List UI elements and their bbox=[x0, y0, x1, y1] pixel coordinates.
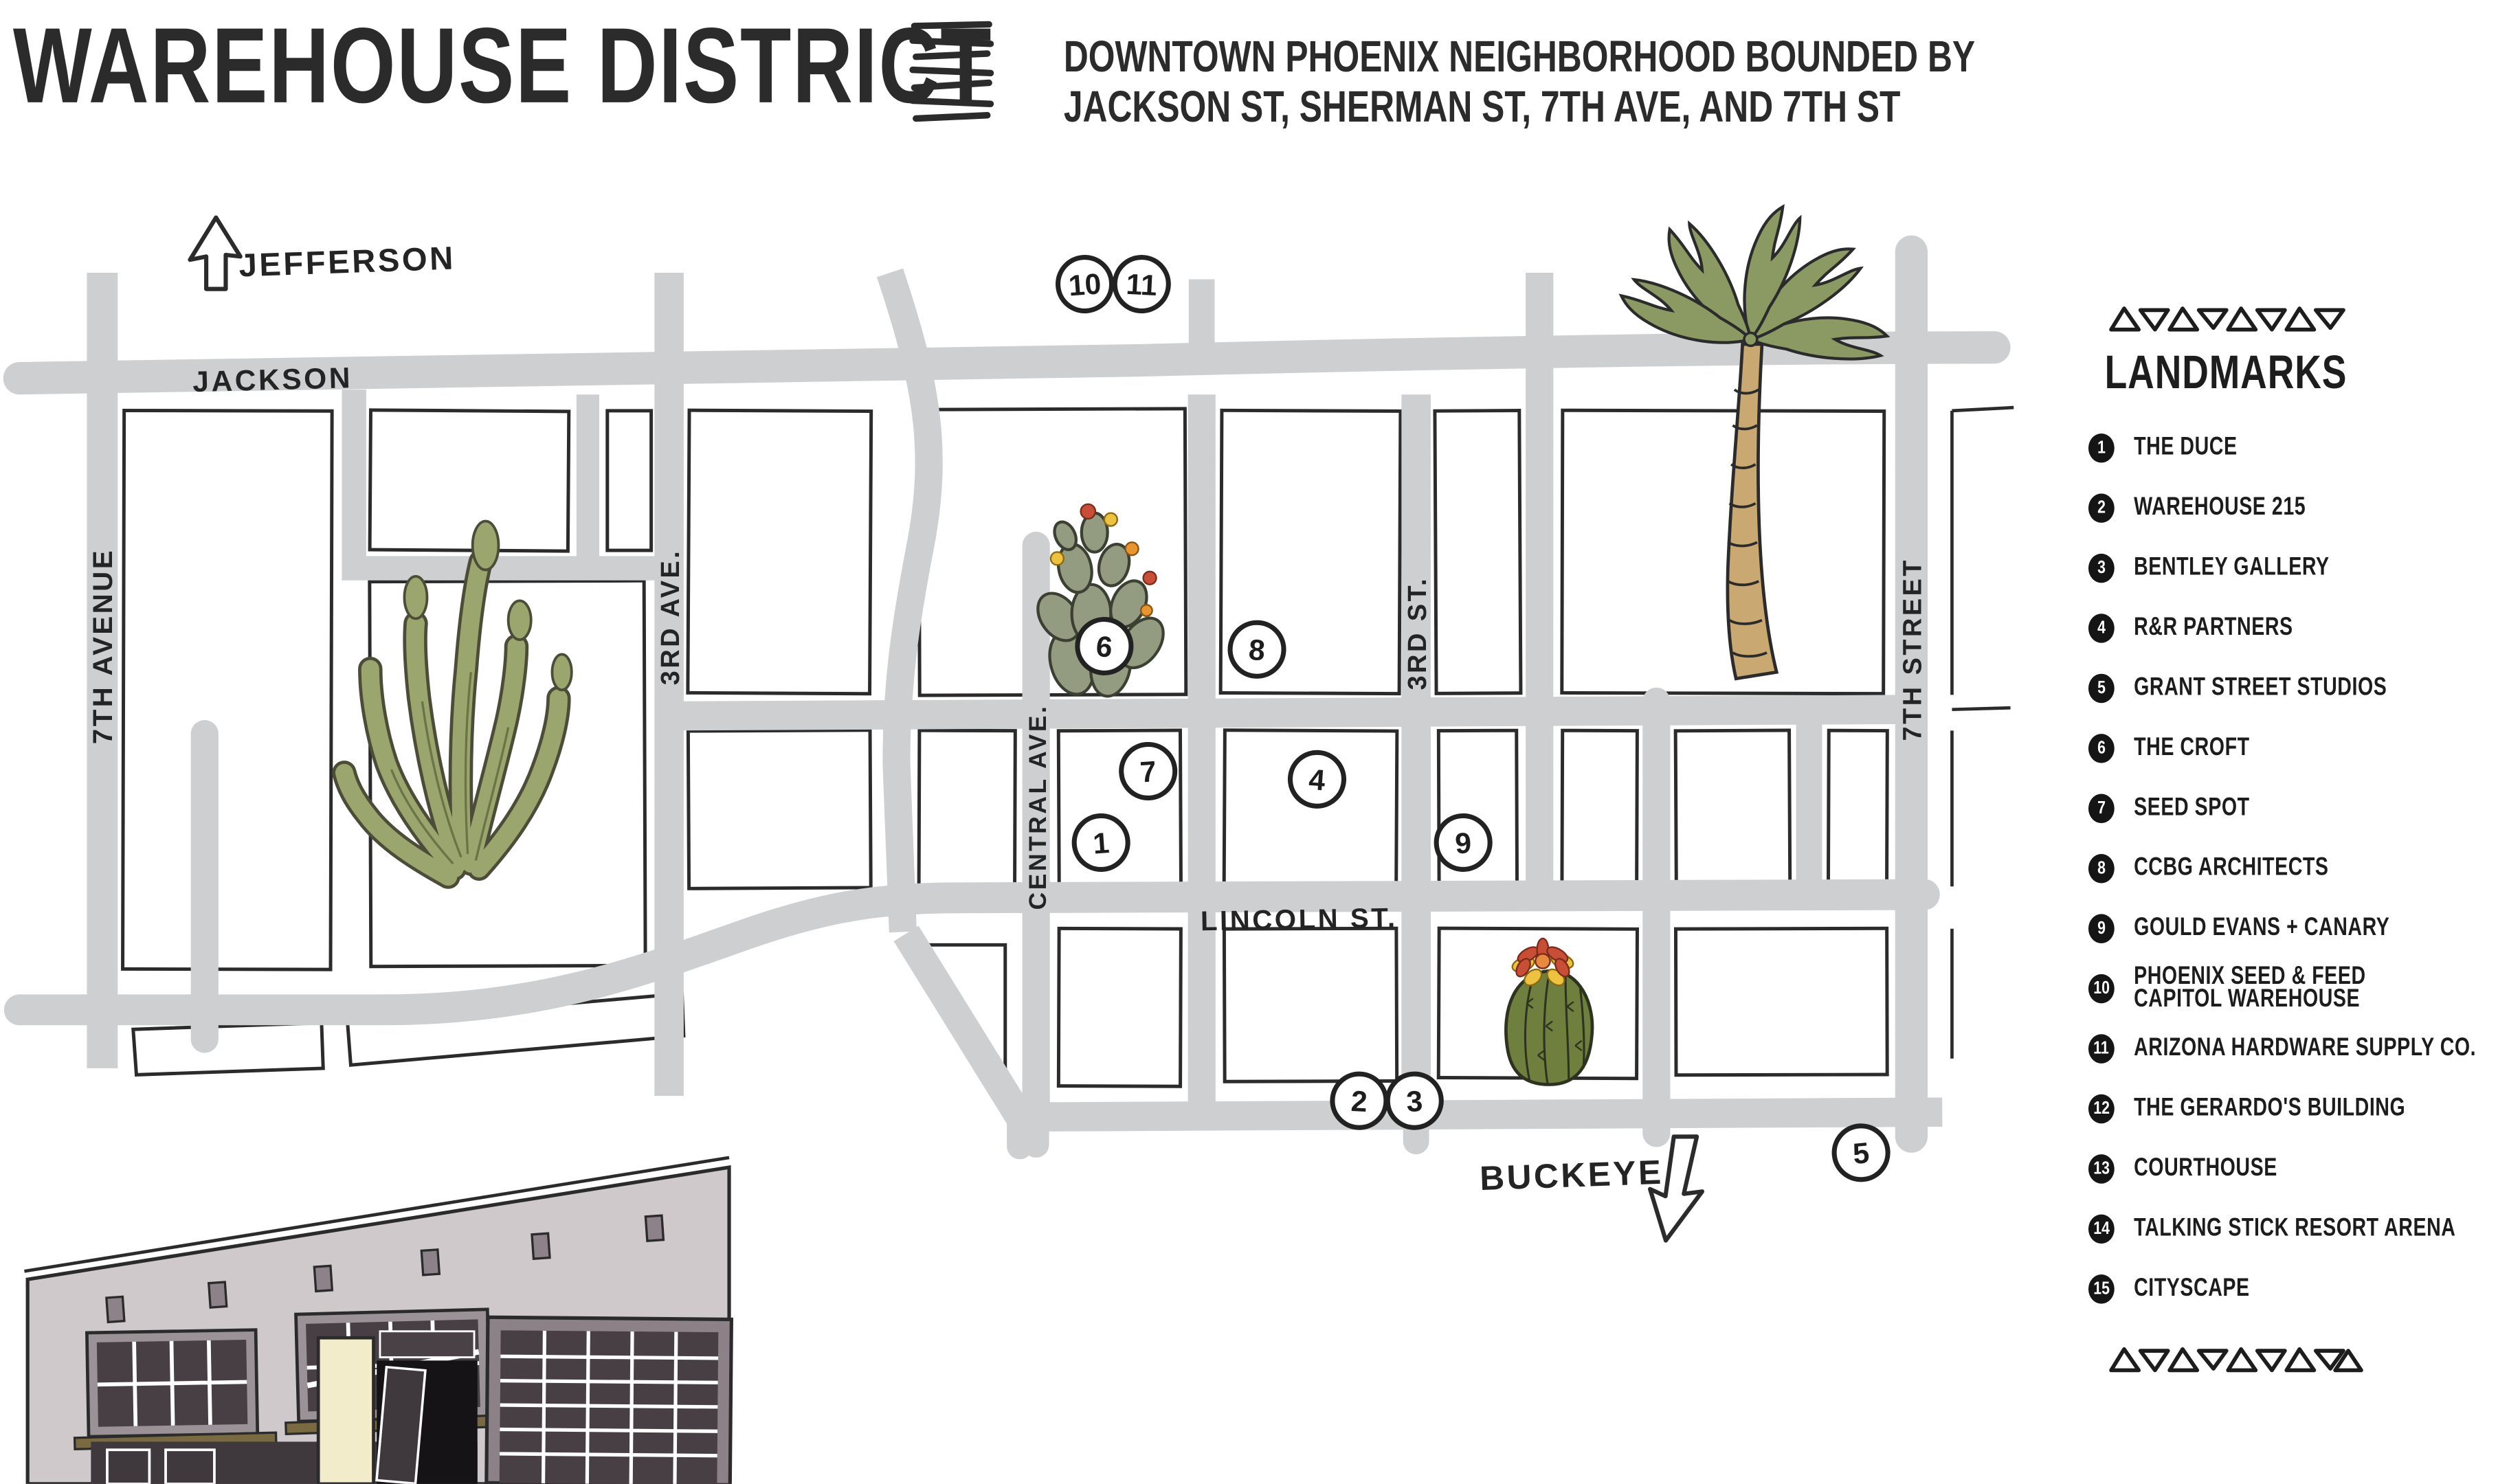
legend-badge-13: 13 bbox=[2088, 1154, 2115, 1183]
legend-badge-3: 3 bbox=[2088, 553, 2115, 583]
map-marker-3: 3 bbox=[1386, 1072, 1442, 1129]
landmarks-legend: LANDMARKS 1 THE DUCE 2 WAREHOUSE 215 3 B… bbox=[2085, 302, 2509, 1377]
legend-item-3: 3 BENTLEY GALLERY bbox=[2088, 537, 2509, 597]
map-marker-8: 8 bbox=[1228, 621, 1285, 678]
jefferson-up-arrow-icon bbox=[190, 218, 240, 289]
legend-badge-11: 11 bbox=[2088, 1033, 2115, 1063]
map-marker-1: 1 bbox=[1073, 814, 1130, 871]
svg-text:4: 4 bbox=[1308, 763, 1326, 798]
street-label-central-ave: CENTRAL AVE. bbox=[1024, 704, 1051, 910]
legend-badge-2: 2 bbox=[2088, 493, 2115, 522]
triangle-border-bottom-icon bbox=[2108, 1341, 2364, 1377]
legend-item-6: 6 THE CROFT bbox=[2088, 717, 2509, 777]
legend-heading: LANDMARKS bbox=[2105, 348, 2509, 401]
legend-item-13: 13 COURTHOUSE bbox=[2088, 1138, 2509, 1198]
legend-badge-4: 4 bbox=[2088, 613, 2115, 642]
legend-item-7: 7 SEED SPOT bbox=[2088, 778, 2509, 837]
legend-badge-12: 12 bbox=[2088, 1094, 2115, 1123]
street-label-3rd-st: 3RD ST. bbox=[1403, 576, 1432, 690]
legend-badge-1: 1 bbox=[2088, 433, 2115, 462]
legend-item-1: 1 THE DUCE bbox=[2088, 417, 2509, 477]
legend-badge-15: 15 bbox=[2088, 1274, 2115, 1303]
svg-text:1: 1 bbox=[1092, 827, 1111, 861]
subtitle-line-2: JACKSON ST, SHERMAN ST, 7TH AVE, AND 7TH… bbox=[1064, 83, 1901, 133]
garage-door bbox=[487, 1317, 732, 1484]
map-marker-7: 7 bbox=[1119, 743, 1177, 800]
svg-text:6: 6 bbox=[1095, 630, 1114, 664]
svg-text:2: 2 bbox=[1350, 1085, 1368, 1118]
east-block-outlines bbox=[1952, 407, 2014, 1059]
legend-item-14: 14 TALKING STICK RESORT ARENA bbox=[2088, 1198, 2509, 1258]
legend-badge-7: 7 bbox=[2088, 793, 2115, 822]
street-label-7th-avenue: 7TH AVENUE bbox=[87, 548, 118, 744]
page-subtitle: DOWNTOWN PHOENIX NEIGHBORHOOD BOUNDED BY… bbox=[1064, 32, 2232, 133]
page-title-text: WAREHOUSE DISTRICT bbox=[13, 3, 992, 127]
map-marker-2: 2 bbox=[1331, 1072, 1387, 1129]
svg-text:8: 8 bbox=[1247, 633, 1266, 668]
svg-text:10: 10 bbox=[1067, 267, 1102, 302]
street-label-7th-street: 7TH STREET bbox=[1899, 558, 1928, 741]
street-label-buckeye: BUCKEYE bbox=[1479, 1153, 1664, 1198]
street-label-jefferson: JEFFERSON bbox=[238, 240, 456, 284]
door-transom bbox=[380, 1331, 474, 1358]
street-label-jackson: JACKSON bbox=[192, 361, 353, 398]
map-marker-9: 9 bbox=[1435, 814, 1491, 870]
legend-item-2: 2 WAREHOUSE 215 bbox=[2088, 477, 2509, 537]
subtitle-line-1: DOWNTOWN PHOENIX NEIGHBORHOOD BOUNDED BY bbox=[1064, 32, 1975, 82]
legend-badge-5: 5 bbox=[2088, 673, 2115, 703]
squiggle-lines-icon bbox=[909, 19, 994, 135]
svg-text:7: 7 bbox=[1139, 755, 1157, 789]
street-label-lincoln: LINCOLN ST. bbox=[1201, 902, 1398, 936]
legend-badge-14: 14 bbox=[2088, 1213, 2115, 1243]
svg-text:11: 11 bbox=[1125, 268, 1157, 302]
legend-item-15: 15 CITYSCAPE bbox=[2088, 1258, 2509, 1318]
window-left bbox=[87, 1330, 257, 1437]
legend-badge-6: 6 bbox=[2088, 733, 2115, 763]
legend-item-8: 8 CCBG ARCHITECTS bbox=[2088, 837, 2509, 897]
svg-text:9: 9 bbox=[1454, 827, 1472, 860]
legend-item-5: 5 GRANT STREET STUDIOS bbox=[2088, 657, 2509, 717]
legend-item-10: 10 PHOENIX SEED & FEED CAPITOL WAREHOUSE bbox=[2088, 958, 2509, 1018]
legend-badge-8: 8 bbox=[2088, 853, 2115, 883]
svg-text:5: 5 bbox=[1851, 1136, 1871, 1171]
map-marker-10: 10 bbox=[1056, 256, 1113, 313]
map-marker-4: 4 bbox=[1289, 751, 1346, 808]
svg-text:3: 3 bbox=[1405, 1085, 1423, 1118]
legend-badge-9: 9 bbox=[2088, 913, 2115, 943]
map-marker-6: 6 bbox=[1075, 617, 1133, 675]
legend-item-9: 9 GOULD EVANS + CANARY bbox=[2088, 898, 2509, 958]
legend-item-11: 11 ARIZONA HARDWARE SUPPLY CO. bbox=[2088, 1018, 2509, 1078]
road-sherman bbox=[669, 710, 1904, 716]
map-marker-11: 11 bbox=[1113, 256, 1170, 313]
warehouse-building-illustration bbox=[24, 1158, 731, 1484]
legend-item-4: 4 R&R PARTNERS bbox=[2088, 598, 2509, 657]
legend-item-12: 12 THE GERARDO'S BUILDING bbox=[2088, 1078, 2509, 1138]
legend-badge-10: 10 bbox=[2088, 974, 2115, 1003]
poster-map-warehouse-district: JACKSON 7TH AVENUE 3RD AVE. CENTRAL AVE.… bbox=[0, 0, 2509, 1484]
triangle-border-top-icon bbox=[2108, 302, 2351, 335]
cream-pillar bbox=[318, 1338, 373, 1484]
street-label-3rd-ave: 3RD AVE. bbox=[656, 549, 685, 685]
map-marker-5: 5 bbox=[1832, 1124, 1890, 1182]
door-leaf bbox=[377, 1367, 425, 1484]
